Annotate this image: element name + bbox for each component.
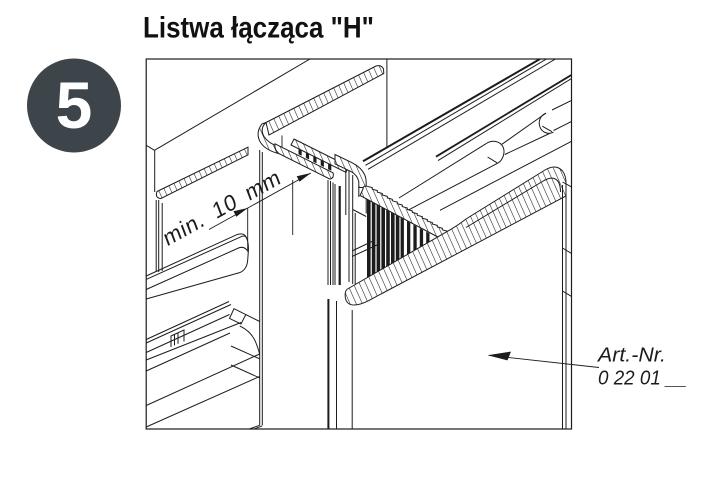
svg-text:0 22 01 __: 0 22 01 __	[598, 367, 687, 390]
svg-text:min. 10 mm: min. 10 mm	[160, 164, 284, 251]
svg-text:Art.-Nr.: Art.-Nr.	[596, 344, 666, 367]
svg-text:5: 5	[56, 68, 93, 142]
svg-text:Listwa łącząca "H": Listwa łącząca "H"	[143, 12, 374, 45]
